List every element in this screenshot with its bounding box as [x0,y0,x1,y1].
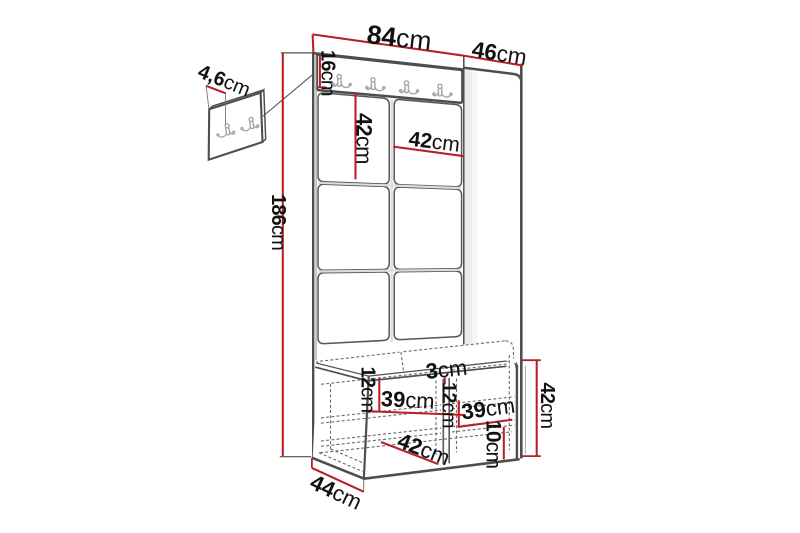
svg-text:3cm: 3cm [424,355,468,384]
svg-text:16cm: 16cm [317,50,339,96]
svg-text:39cm: 39cm [380,386,435,414]
svg-text:12cm: 12cm [357,367,379,413]
svg-text:42cm: 42cm [536,383,558,429]
svg-text:42cm: 42cm [352,113,377,164]
svg-text:12cm: 12cm [438,382,460,428]
svg-text:10cm: 10cm [482,420,505,468]
svg-text:186cm: 186cm [267,194,289,250]
